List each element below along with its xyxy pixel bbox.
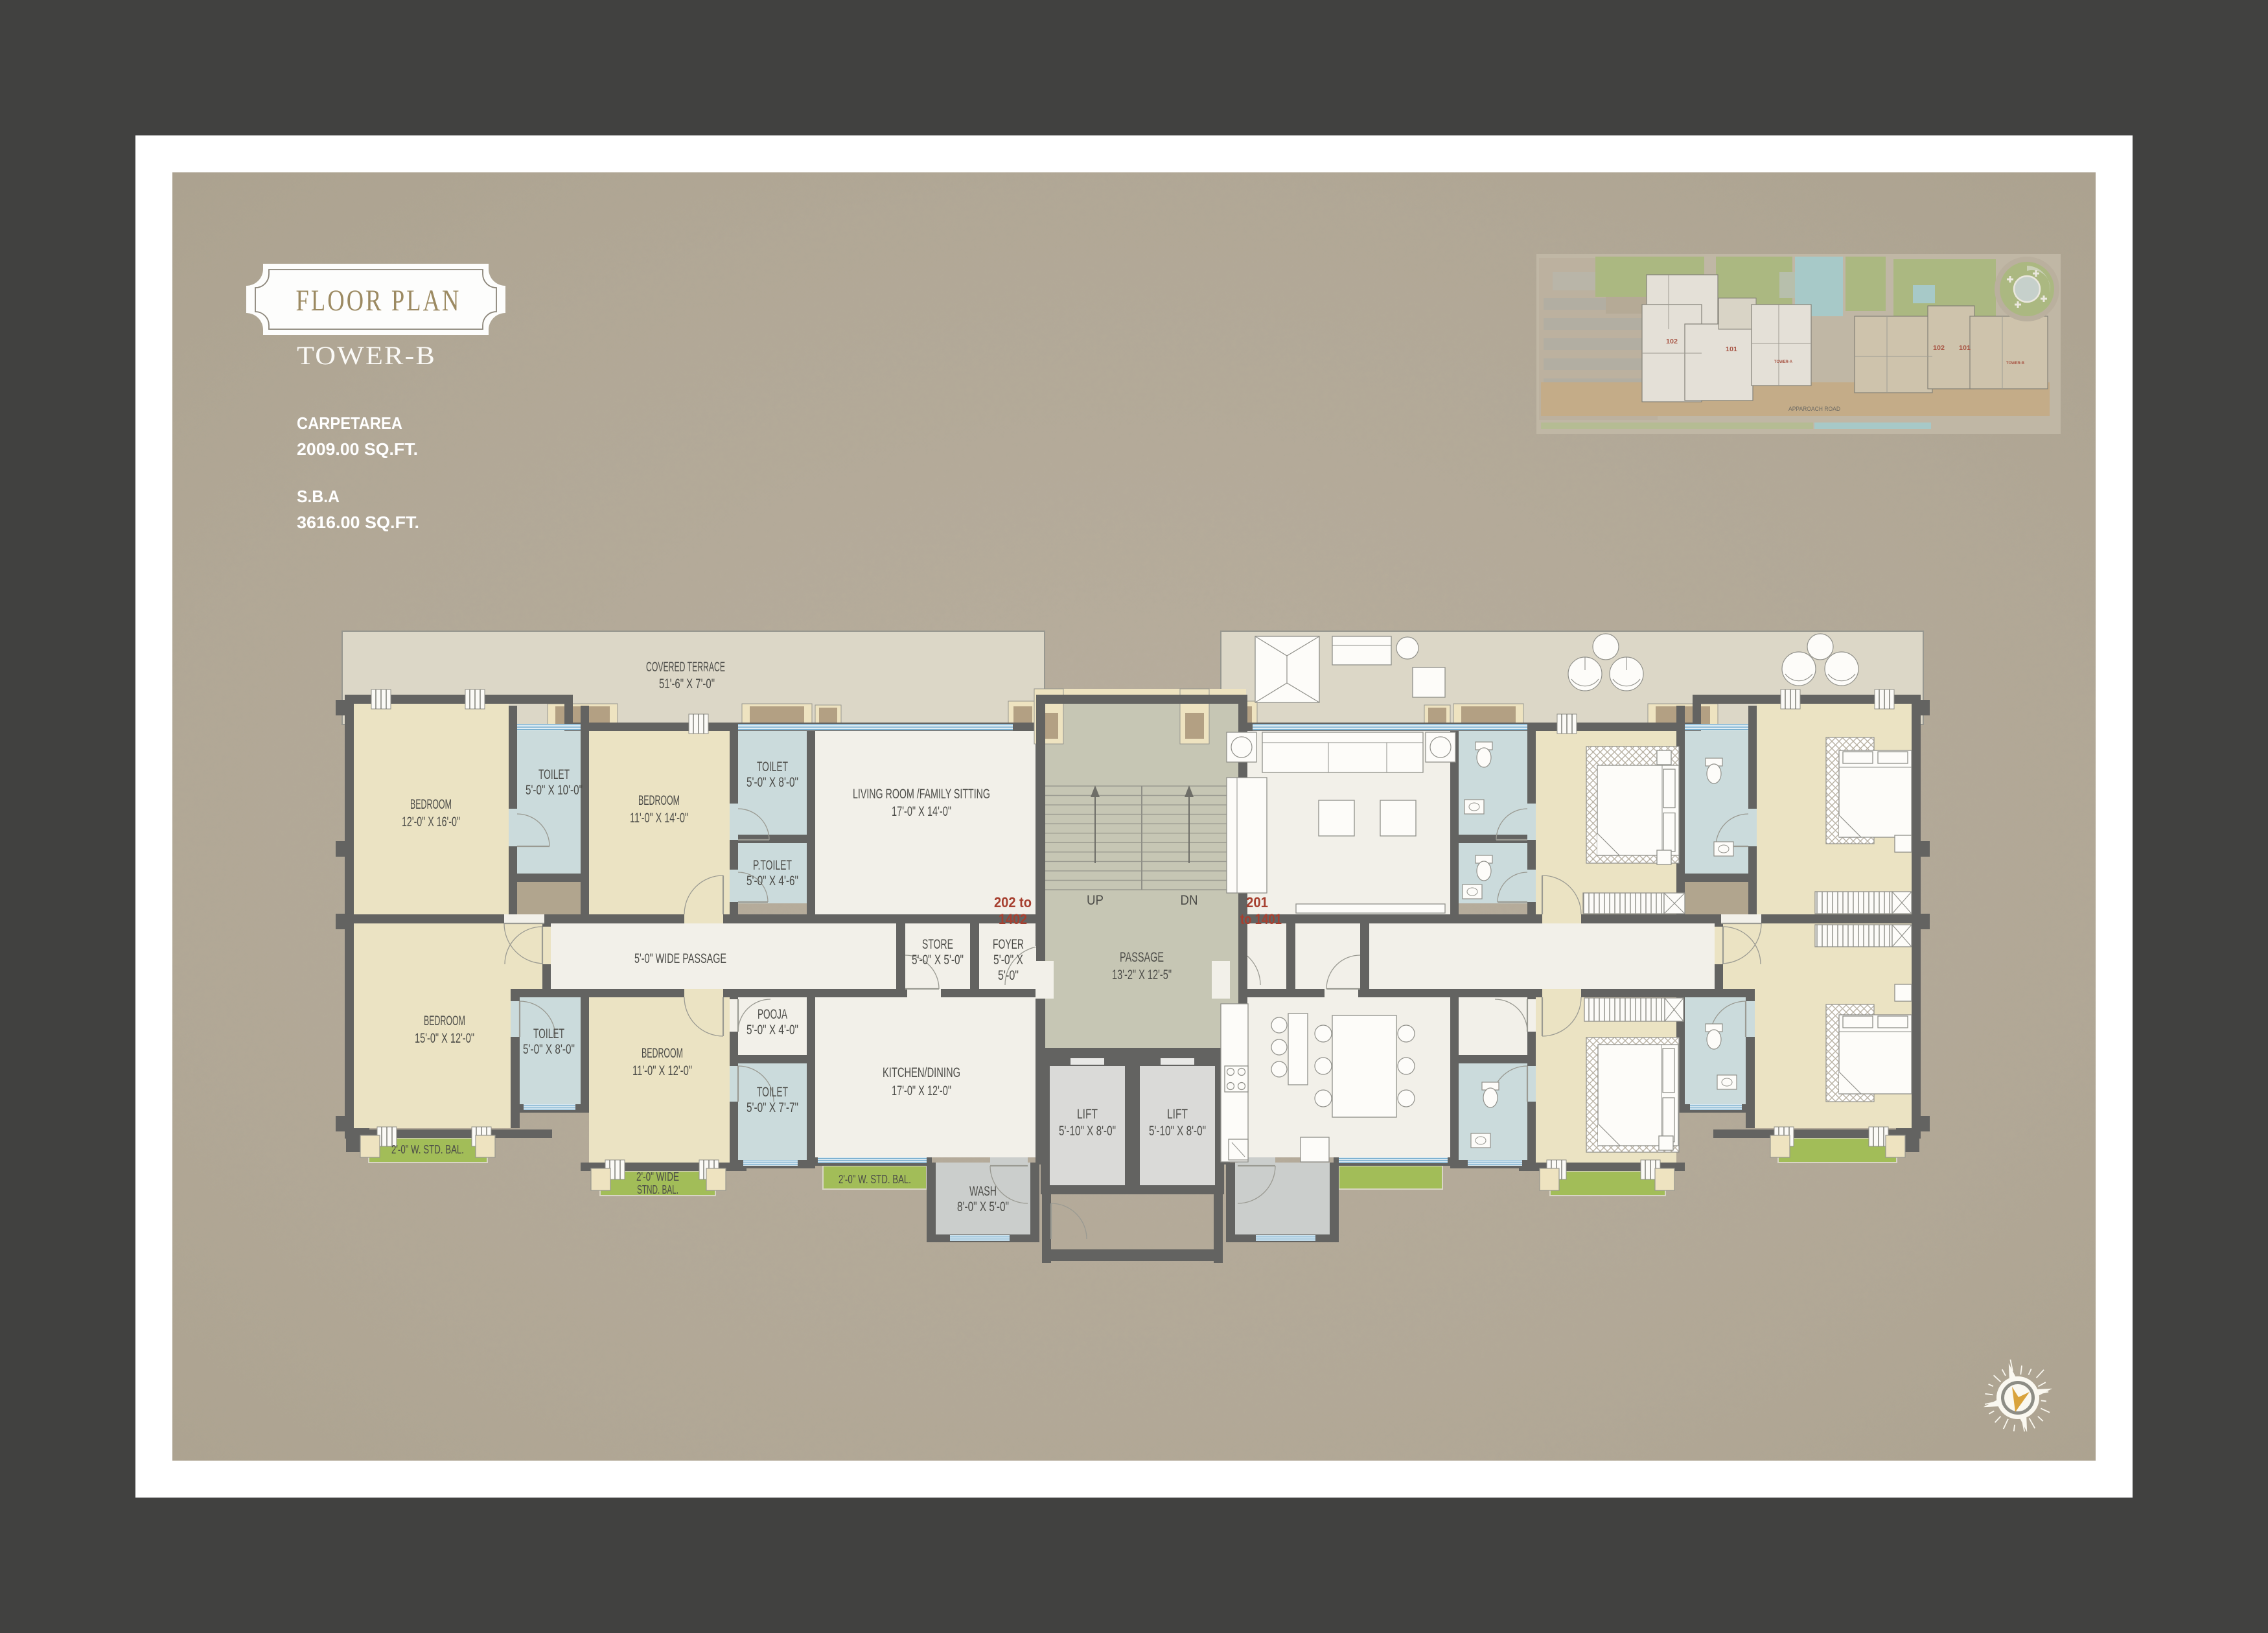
svg-text:BEDROOM: BEDROOM xyxy=(642,1046,683,1061)
svg-text:FLOOR PLAN: FLOOR PLAN xyxy=(296,284,461,318)
svg-text:TOWER-B: TOWER-B xyxy=(297,341,436,370)
svg-text:LIFT: LIFT xyxy=(1167,1107,1188,1122)
svg-text:2'-0" WIDE: 2'-0" WIDE xyxy=(636,1170,679,1183)
svg-text:TOILET: TOILET xyxy=(538,767,570,782)
svg-text:17'-0" X 14'-0": 17'-0" X 14'-0" xyxy=(892,804,951,819)
svg-text:5'-0": 5'-0" xyxy=(998,968,1019,983)
svg-text:P.TOILET: P.TOILET xyxy=(753,858,792,873)
svg-text:2009.00 SQ.FT.: 2009.00 SQ.FT. xyxy=(297,439,418,459)
svg-text:COVERED TERRACE: COVERED TERRACE xyxy=(646,660,725,675)
svg-text:LIFT: LIFT xyxy=(1077,1107,1098,1122)
svg-text:TOILET: TOILET xyxy=(757,1085,788,1100)
svg-text:202 to: 202 to xyxy=(994,894,1032,910)
svg-text:11'-0" X 12'-0": 11'-0" X 12'-0" xyxy=(632,1063,692,1078)
svg-text:FOYER: FOYER xyxy=(993,937,1024,952)
svg-text:KITCHEN/DINING: KITCHEN/DINING xyxy=(883,1065,960,1080)
svg-text:2'-0" W. STD. BAL.: 2'-0" W. STD. BAL. xyxy=(839,1173,911,1186)
svg-text:2'-0" W. STD. BAL.: 2'-0" W. STD. BAL. xyxy=(391,1143,464,1156)
svg-text:5'-0" WIDE PASSAGE: 5'-0" WIDE PASSAGE xyxy=(634,951,726,966)
svg-text:PASSAGE: PASSAGE xyxy=(1120,950,1164,965)
svg-text:5'-0" X 4'-0": 5'-0" X 4'-0" xyxy=(746,1023,798,1037)
svg-text:1402: 1402 xyxy=(999,911,1027,927)
svg-text:5'-0" X 4'-6": 5'-0" X 4'-6" xyxy=(746,874,798,888)
svg-text:TOILET: TOILET xyxy=(533,1026,564,1041)
svg-text:DN: DN xyxy=(1181,893,1198,908)
svg-text:to 1401: to 1401 xyxy=(1240,911,1282,927)
svg-text:STND. BAL.: STND. BAL. xyxy=(637,1183,678,1196)
svg-text:13'-2" X 12'-5": 13'-2" X 12'-5" xyxy=(1112,967,1172,982)
svg-text:5'-0" X 7'-7": 5'-0" X 7'-7" xyxy=(746,1100,798,1115)
svg-text:5'-0" X 8'-0": 5'-0" X 8'-0" xyxy=(523,1042,575,1057)
svg-text:5'-0" X 10'-0": 5'-0" X 10'-0" xyxy=(526,783,583,798)
svg-text:BEDROOM: BEDROOM xyxy=(638,793,680,808)
svg-text:11'-0" X 14'-0": 11'-0" X 14'-0" xyxy=(630,811,688,826)
svg-text:S.B.A: S.B.A xyxy=(297,487,340,506)
svg-text:15'-0" X 12'-0": 15'-0" X 12'-0" xyxy=(415,1031,474,1046)
svg-text:CARPETAREA: CARPETAREA xyxy=(297,413,402,433)
svg-text:3616.00 SQ.FT.: 3616.00 SQ.FT. xyxy=(297,513,419,532)
svg-text:5'-0" X 8'-0": 5'-0" X 8'-0" xyxy=(746,775,798,790)
svg-text:LIVING ROOM /FAMILY SITTING: LIVING ROOM /FAMILY SITTING xyxy=(853,787,990,802)
svg-text:POOJA: POOJA xyxy=(758,1007,787,1022)
svg-text:5'-0" X: 5'-0" X xyxy=(993,953,1023,967)
svg-text:5'-0" X 5'-0": 5'-0" X 5'-0" xyxy=(912,953,964,967)
svg-text:12'-0" X 16'-0": 12'-0" X 16'-0" xyxy=(402,815,460,829)
svg-text:5'-10" X 8'-0": 5'-10" X 8'-0" xyxy=(1149,1124,1206,1139)
svg-text:17'-0" X 12'-0": 17'-0" X 12'-0" xyxy=(892,1083,951,1098)
svg-text:5'-10" X 8'-0": 5'-10" X 8'-0" xyxy=(1059,1124,1116,1139)
svg-text:WASH: WASH xyxy=(969,1184,997,1199)
svg-text:STORE: STORE xyxy=(922,937,953,952)
svg-text:BEDROOM: BEDROOM xyxy=(410,797,452,812)
svg-text:UP: UP xyxy=(1087,893,1104,908)
svg-text:BEDROOM: BEDROOM xyxy=(424,1013,465,1028)
svg-text:TOILET: TOILET xyxy=(757,759,788,774)
svg-text:201: 201 xyxy=(1246,894,1268,910)
svg-text:8'-0" X 5'-0": 8'-0" X 5'-0" xyxy=(957,1199,1009,1214)
svg-text:51'-6" X 7'-0": 51'-6" X 7'-0" xyxy=(659,677,715,691)
